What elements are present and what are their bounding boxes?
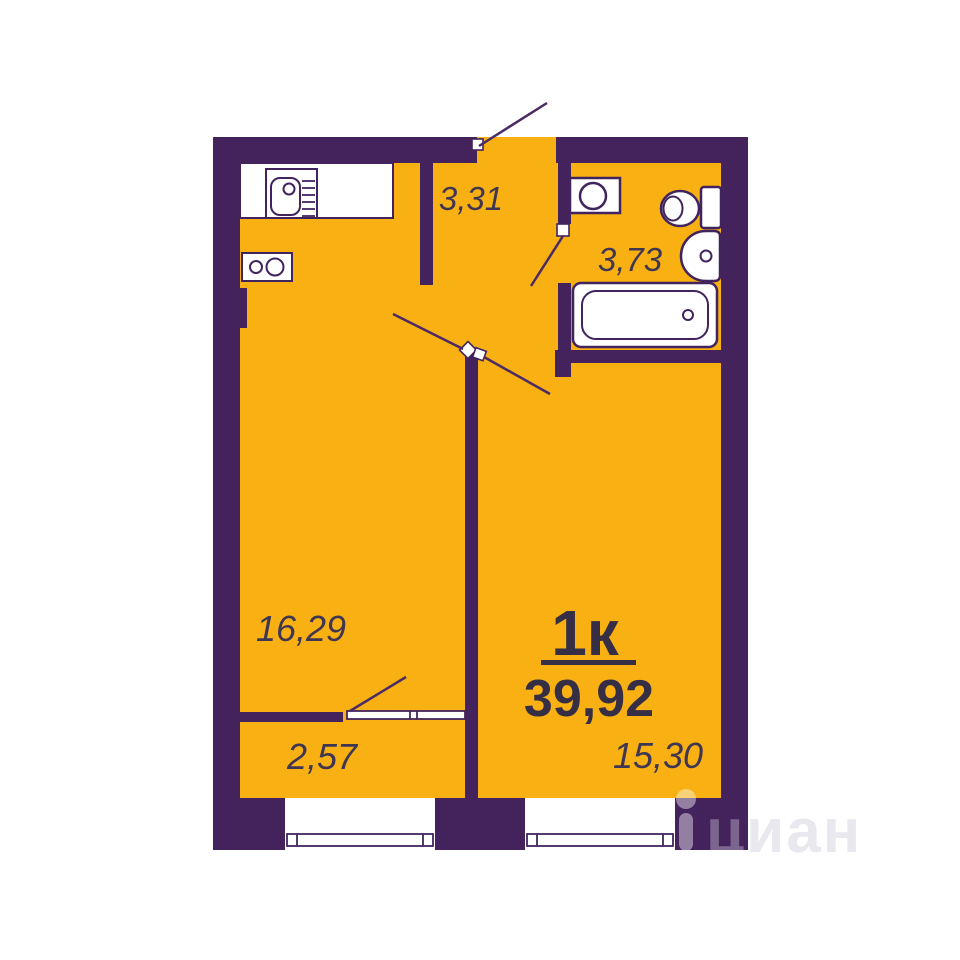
type-underline [541, 660, 636, 665]
bathtub-drain [683, 310, 693, 320]
left-wall-pilaster [240, 288, 247, 328]
living-area-label: 16,29 [256, 608, 346, 649]
kitchen-faucet [284, 184, 295, 195]
room-window [525, 798, 675, 856]
bathroom-door-hinge [557, 224, 569, 236]
room-area-label: 15,30 [613, 735, 703, 776]
balcony-area-label: 2,57 [286, 736, 359, 777]
right-wall [721, 137, 748, 850]
toilet-tank [701, 187, 721, 228]
map-pin-icon [676, 789, 696, 851]
map-pin-head [676, 789, 696, 809]
top-wall-left-segment [213, 137, 477, 163]
apartment-type-label: 1к [551, 597, 620, 669]
top-wall-right-segment [556, 137, 748, 163]
floor-plan-page: 3,31 3,73 16,29 2,57 15,30 1к 39,92 циан [0, 0, 960, 960]
kitchen-hall-wall [420, 163, 433, 285]
map-pin-body [679, 813, 693, 851]
bathroom-left-wall-lower [558, 283, 571, 350]
stove-burner-large [267, 259, 284, 276]
washing-machine-door [580, 183, 606, 209]
watermark-letter-on-wall: ц [706, 797, 746, 866]
watermark-letters-rest: иан [746, 797, 862, 866]
total-area-label: 39,92 [524, 670, 654, 728]
bathtub [573, 283, 717, 347]
bathroom-wall-corner-tab [555, 350, 571, 377]
floor-plan: 3,31 3,73 16,29 2,57 15,30 1к 39,92 циан [0, 0, 960, 960]
room-divider-wall [465, 352, 478, 798]
toilet-bowl [661, 191, 699, 226]
left-wall [213, 137, 240, 850]
balcony-wall [240, 712, 343, 722]
hallway-area-label: 3,31 [439, 180, 503, 217]
stove-burner-small [250, 261, 262, 273]
balcony-window [285, 798, 435, 856]
bathroom-bottom-wall [555, 350, 721, 363]
bathroom-sink-drain [701, 251, 712, 262]
balcony-glazing-frame [347, 711, 465, 719]
watermark-brand: циан [706, 797, 862, 866]
bathroom-area-label: 3,73 [598, 241, 663, 278]
